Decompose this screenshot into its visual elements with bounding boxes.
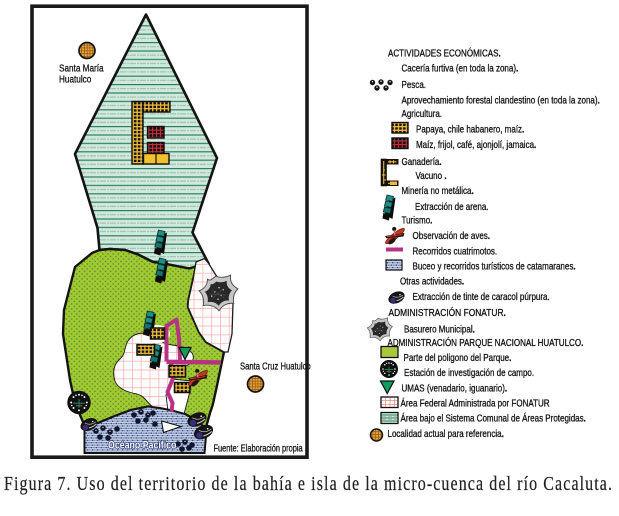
svg-text:Observación de aves.: Observación de aves. [413, 230, 491, 241]
svg-text:Basurero Municipal.: Basurero Municipal. [404, 323, 475, 334]
svg-text:Aprovechamiento forestal cland: Aprovechamiento forestal clandestino (en… [402, 94, 600, 105]
svg-text:Extracción de arena.: Extracción de arena. [415, 201, 489, 212]
svg-text:Localidad actual para referenc: Localidad actual para referencia. [388, 428, 504, 439]
svg-text:Estación de investigación de c: Estación de investigación de campo. [404, 367, 534, 378]
svg-text:Papaya, chile habanero, maíz.: Papaya, chile habanero, maíz. [416, 123, 524, 134]
svg-text:Área Federal Administrada por: Área Federal Administrada por FONATUR [401, 397, 550, 408]
svg-text:Ganadería.: Ganadería. [402, 156, 442, 167]
svg-text:ADMINISTRACIÓN PARQUE NACIONAL: ADMINISTRACIÓN PARQUE NACIONAL HUATULCO. [388, 337, 584, 348]
svg-text:Buceo y recorridos turísticos: Buceo y recorridos turísticos de catamar… [413, 260, 576, 271]
svg-text:Minería no metálica.: Minería no metálica. [402, 185, 474, 196]
svg-text:Área bajo el Sistema Comunal d: Área bajo el Sistema Comunal de Áreas Pr… [401, 412, 586, 423]
svg-text:Otras actividades.: Otras actividades. [400, 275, 464, 286]
svg-text:Figura 7. Uso del territorio d: Figura 7. Uso del territorio de la bahía… [4, 472, 612, 494]
svg-text:Parte del poligono del Parque.: Parte del poligono del Parque. [404, 352, 512, 363]
svg-text:Maíz, frijol, café, ajonjolí,: Maíz, frijol, café, ajonjolí, jamaica. [416, 139, 536, 150]
svg-text:Cacería furtiva (en toda la zo: Cacería furtiva (en toda la zona). [402, 62, 519, 73]
svg-text:Fuente: Elaboración propia: Fuente: Elaboración propia [214, 442, 303, 453]
svg-text:Extracción de tinte de caracol: Extracción de tinte de caracol púrpura. [413, 291, 550, 302]
svg-text:Recorridos cuatrimotos.: Recorridos cuatrimotos. [413, 245, 498, 256]
svg-text:ACTIVIDADES ECONÓMICAS.: ACTIVIDADES ECONÓMICAS. [388, 47, 501, 58]
svg-text:Huatulco: Huatulco [59, 72, 91, 84]
svg-text:Vacuno .: Vacuno . [416, 170, 447, 181]
svg-text:Agricultura.: Agricultura. [402, 108, 443, 119]
svg-text:ADMINISTRACIÓN FONATUR.: ADMINISTRACIÓN FONATUR. [389, 307, 506, 319]
svg-text:Santa Cruz Huatulco: Santa Cruz Huatulco [240, 360, 311, 371]
svg-text:Océano Pacífico: Océano Pacífico [108, 440, 176, 452]
svg-text:Pesca.: Pesca. [402, 79, 427, 90]
svg-text:Turismo.: Turismo. [402, 214, 433, 225]
svg-text:UMAS (venadario, iguanario).: UMAS (venadario, iguanario). [402, 382, 508, 393]
